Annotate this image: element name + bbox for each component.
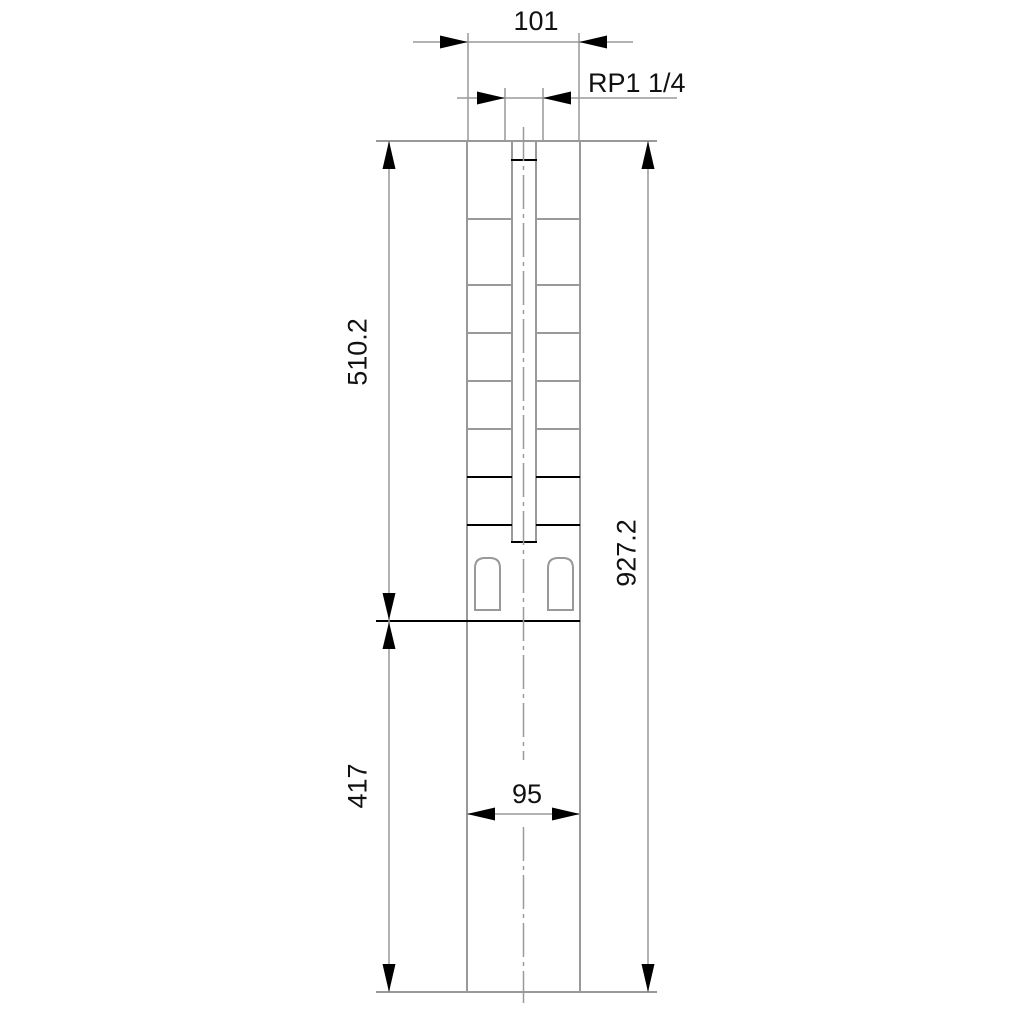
pump-outline-drawing: 101 RP1 1/4 510.2 417 927.2 (0, 0, 1024, 1024)
arrowhead-down-icon (642, 964, 655, 992)
dim-label-thread: RP1 1/4 (588, 68, 686, 98)
arrowhead-left-icon (579, 36, 607, 49)
arrowhead-right-icon (440, 36, 468, 49)
arrowhead-right-icon (552, 808, 580, 821)
arrowhead-right-icon (477, 92, 505, 105)
arrowhead-left-icon (467, 808, 495, 821)
dim-label-length-total: 927.2 (611, 519, 641, 587)
suction-slot-left (475, 558, 500, 610)
arrowhead-left-icon (543, 92, 571, 105)
arrowhead-up-icon (383, 622, 396, 649)
dim-label-length-motor: 417 (342, 763, 372, 808)
arrowhead-down-icon (383, 964, 396, 992)
arrowhead-up-icon (383, 141, 396, 169)
drawing-canvas: 101 RP1 1/4 510.2 417 927.2 (0, 0, 1024, 1024)
suction-slot-right (548, 558, 573, 610)
dim-label-width-motor: 95 (512, 779, 542, 809)
dimension-thread: RP1 1/4 (457, 68, 686, 141)
dimension-width-motor: 95 (467, 777, 580, 821)
dimension-total-length: 927.2 (611, 141, 654, 992)
dim-label-width-top: 101 (513, 6, 558, 36)
arrowhead-down-icon (383, 593, 396, 620)
dimension-left-chain: 510.2 417 (342, 141, 395, 992)
dim-label-length-pump: 510.2 (342, 318, 372, 386)
arrowhead-up-icon (642, 141, 655, 169)
